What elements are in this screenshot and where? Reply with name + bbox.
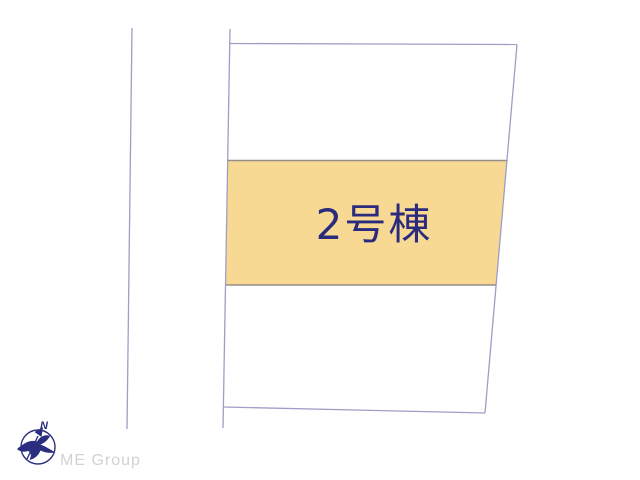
site-plan-canvas: 2号棟 N ME Group (0, 0, 640, 480)
parcel-2-label: 2号棟 (316, 200, 433, 249)
brand-name-text: ME Group (60, 452, 141, 469)
compass-logo: N (17, 420, 56, 464)
parcel-bottom-edge (224, 407, 486, 413)
parcel-top-edge (230, 44, 518, 45)
site-plan-page: 2号棟 N ME Group (0, 0, 640, 480)
road-boundary-line (127, 28, 132, 429)
north-label: N (40, 420, 49, 432)
